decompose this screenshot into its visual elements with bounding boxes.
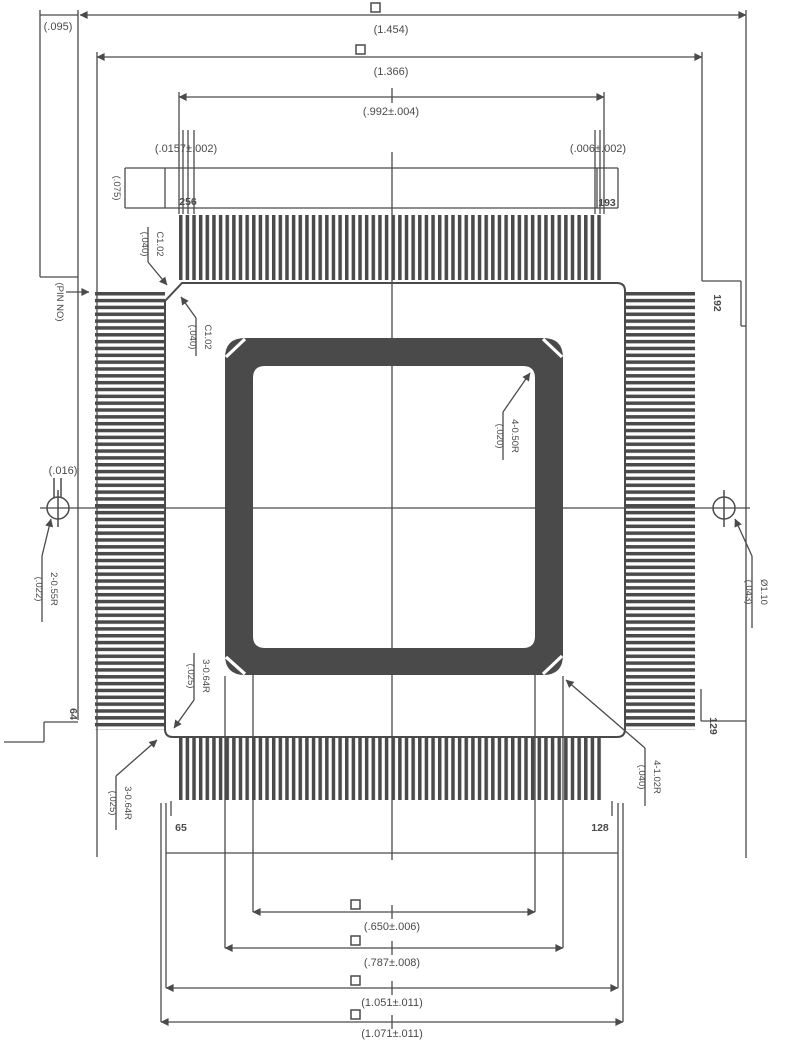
corner-bl-callout-b-value: 3-0.64R (122, 786, 133, 820)
chamfer-callout-b-value: C1.02 (202, 324, 213, 349)
dim-lead-span: (.992±.004) (363, 106, 419, 118)
dim-pad-inner: (.650±.006) (364, 921, 420, 933)
pin-row-top (179, 215, 604, 280)
dim-overall-bottom: (1.071±.011) (361, 1028, 422, 1040)
right-hole-callout-value: Ø1.10 (758, 579, 769, 605)
pad-corner-callout-value: 4-1.02R (651, 760, 662, 794)
chamfer-callout-a-ref: (.040) (139, 232, 150, 257)
datum-square-symbols (351, 3, 380, 1019)
pin-129: 129 (707, 717, 719, 735)
pin-column-right (625, 292, 695, 730)
pad-corner-callout-ref: (.040) (636, 765, 647, 790)
right-hole-callout-ref: (.043) (743, 580, 754, 605)
inner-corner-callout-value: 4-0.50R (509, 419, 520, 453)
pin-256: 256 (179, 196, 197, 208)
dim-left-hole-width: (.016) (49, 465, 78, 477)
dim-lead-pitch: (.0157±.002) (155, 143, 217, 155)
drawing-canvas: (1.454) (.095) (1.366) (.992±.004) (.015… (0, 0, 790, 1040)
inner-corner-callout-ref: (.020) (494, 424, 505, 449)
dim-overall-top: (1.454) (374, 24, 409, 36)
dim-pad-outer: (.787±.008) (364, 957, 420, 969)
pin-column-left (95, 292, 165, 730)
package-outline-drawing: (1.454) (.095) (1.366) (.992±.004) (.015… (0, 0, 790, 1040)
left-hole-callout-value: 2-0.55R (48, 572, 59, 606)
pin-no-note: (PIN NO) (54, 282, 65, 321)
dim-outer-body: (1.366) (374, 66, 409, 78)
dim-tip-span: (1.051±.011) (361, 997, 422, 1009)
pin-65: 65 (175, 822, 187, 834)
chamfer-callout-b-ref: (.040) (187, 325, 198, 350)
corner-bl-callout-a-ref: (.025) (185, 664, 196, 689)
corner-bl-callout-b-ref: (.025) (107, 791, 118, 816)
dim-edge-offset: (.095) (44, 21, 73, 33)
left-hole-callout-ref: (.022) (33, 577, 44, 602)
dim-lead-width: (.006±.002) (570, 143, 626, 155)
pin-128: 128 (591, 822, 609, 834)
pin-64: 64 (67, 708, 79, 720)
pin-193: 193 (598, 197, 616, 209)
corner-bl-callout-a-value: 3-0.64R (200, 659, 211, 693)
chamfer-callout-a-value: C1.02 (154, 231, 165, 256)
dim-lead-length: (.075) (111, 176, 122, 201)
pin-192: 192 (711, 294, 723, 312)
pad-corner-chamfer-marks (226, 339, 562, 674)
pin-row-bottom (179, 737, 604, 800)
die-pad-ring (225, 338, 563, 675)
